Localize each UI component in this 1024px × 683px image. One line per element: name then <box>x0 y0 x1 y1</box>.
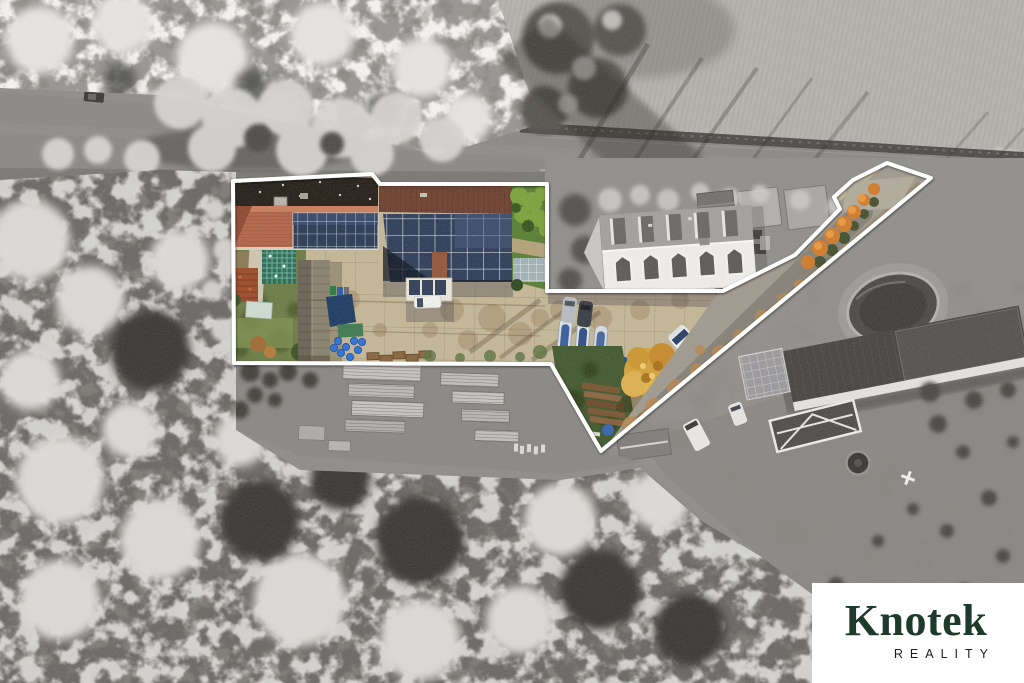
brand-name: Knotek <box>836 598 996 644</box>
aerial-photo-canvas <box>0 0 1024 683</box>
brand-watermark: Knotek REALITY <box>812 583 1024 683</box>
brand-tagline: REALITY <box>836 647 996 661</box>
aerial-listing-photo: Knotek REALITY <box>0 0 1024 683</box>
film-grain <box>0 0 1024 683</box>
